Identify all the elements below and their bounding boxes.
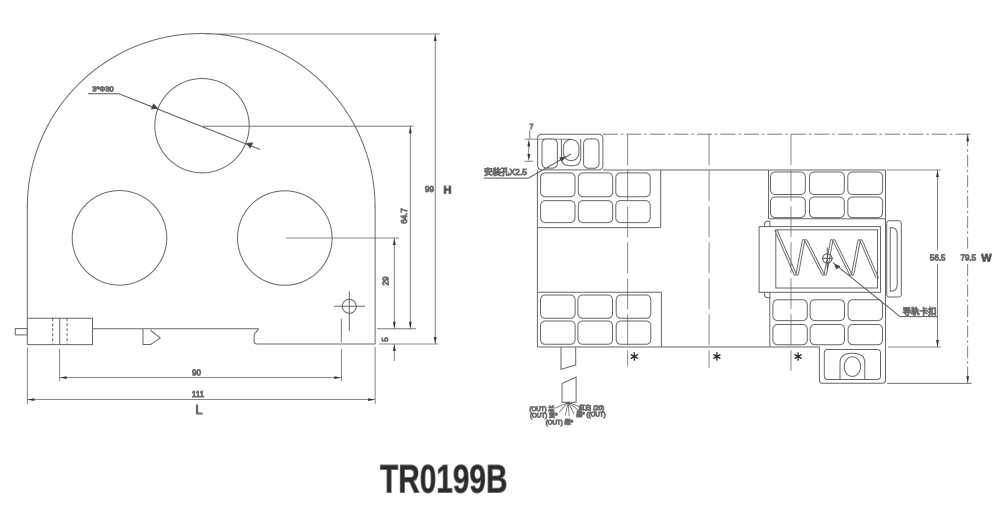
svg-text:L: L [195, 402, 202, 417]
svg-text:79.5: 79.5 [961, 254, 977, 263]
svg-text:TR0199B: TR0199B [380, 458, 508, 502]
svg-text:(OUT) 兰: (OUT) 兰 [529, 405, 554, 413]
svg-text:(OUT) 绿*: (OUT) 绿* [546, 419, 574, 427]
svg-text:99: 99 [425, 185, 434, 194]
svg-text:5: 5 [381, 337, 390, 342]
svg-text:7: 7 [530, 124, 534, 131]
svg-text:导轨卡扣: 导轨卡扣 [902, 307, 936, 317]
svg-text:黑* ((OUT): 黑* ((OUT) [576, 412, 606, 419]
svg-text:红白 (20): 红白 (20) [579, 404, 604, 412]
svg-text:64.7: 64.7 [400, 208, 409, 224]
svg-text:3*Φ30: 3*Φ30 [92, 85, 113, 94]
svg-text:90: 90 [192, 369, 201, 378]
svg-text:H: H [444, 185, 452, 197]
svg-text:29: 29 [382, 276, 391, 285]
svg-text:111: 111 [192, 390, 205, 399]
svg-text:W: W [981, 253, 992, 265]
svg-text:(OUT) 黄*: (OUT) 黄* [530, 412, 558, 420]
svg-text:安装孔X2.5: 安装孔X2.5 [484, 167, 527, 177]
svg-text:56.5: 56.5 [930, 254, 946, 263]
